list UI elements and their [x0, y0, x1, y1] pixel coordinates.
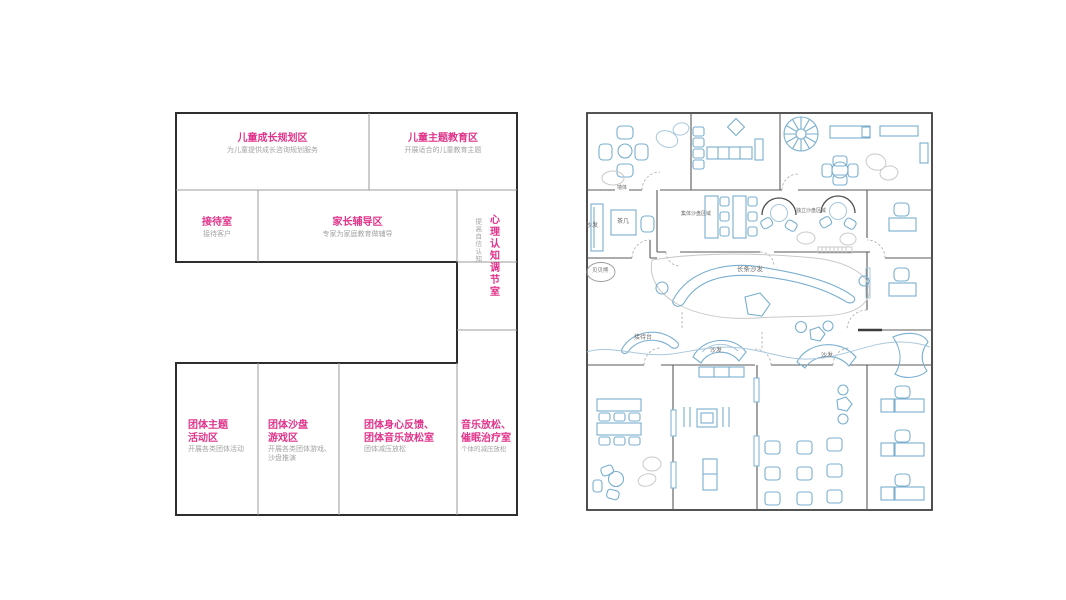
curved-sofa-right: [893, 333, 928, 377]
winding-path: [587, 342, 930, 359]
zone-title: 团体沙盘游戏区: [268, 420, 313, 445]
reception-desk-label: 接待台: [634, 335, 652, 341]
zone-group-sandplay: 团体沙盘游戏区 开展各类团体游戏、沙盘推演: [268, 420, 334, 464]
wall-label: 墙体: [615, 186, 629, 191]
zone-subtitle: 接待客户: [176, 230, 258, 239]
floorplan-page: 儿童成长规划区 为儿童提供成长咨询规划服务 儿童主题教育区 开展适合的儿童教育主…: [0, 0, 1066, 600]
zone-subtitle: 团体减压放松: [364, 445, 456, 454]
floorplan-linework: [0, 0, 1066, 600]
office-desks-group: [866, 203, 916, 298]
media-room: [671, 367, 759, 490]
zone-hypnosis: 音乐放松、催眠治疗室 个体的减压放松: [461, 420, 515, 454]
zone-reception: 接待室 接待客户: [176, 217, 258, 239]
pentagon-table: [745, 293, 770, 316]
zone-title: 家长辅导区: [258, 217, 457, 230]
tea-table-label: 茶几: [617, 219, 629, 225]
long-sofa: [673, 265, 855, 306]
sofa-mid-label: 沙发: [710, 348, 722, 354]
zone-child-education: 儿童主题教育区 开展适合的儿童教育主题: [369, 133, 517, 155]
spiral-stair: [784, 117, 818, 151]
zone-child-growth: 儿童成长规划区 为儿童提供成长咨询规划服务: [176, 133, 369, 155]
zone-group-music: 团体身心反馈、团体音乐放松室 团体减压放松: [364, 420, 456, 454]
cross-seating-group: [599, 121, 690, 185]
zone-subtitle: 个体的减压放松: [461, 445, 515, 454]
zone-cognition-subtitle: 提高自信认知: [473, 218, 482, 263]
sofa-right-label: 沙发: [821, 353, 833, 359]
zone-subtitle: 专家为家庭教育做辅导: [258, 230, 457, 239]
long-sofa-label: 长条沙发: [737, 266, 763, 273]
meeting-tables-group: [822, 126, 928, 185]
beibei-bear-label: 贝贝熊: [592, 269, 609, 275]
zone-subtitle: 开展各类团体游戏、沙盘推演: [268, 445, 334, 464]
left-plan-walls: [176, 113, 517, 515]
seat-row-table-group: [693, 119, 763, 169]
zone-cognition-title: 心理认知调节室: [486, 214, 499, 298]
group-sand-label: 集体沙盘区域: [681, 212, 711, 217]
zone-title: 团体身心反馈、团体音乐放松室: [364, 420, 440, 445]
sandplay-room-group: [705, 196, 857, 253]
zone-subtitle: 开展适合的儿童教育主题: [369, 146, 517, 155]
sofa-label: 沙发: [586, 223, 598, 229]
zone-title: 团体主题活动区: [188, 420, 233, 445]
zone-subtitle: 开展各类团体活动: [188, 445, 254, 454]
zone-parent-tutoring: 家长辅导区 专家为家庭教育做辅导: [258, 217, 457, 239]
music-relax-room: [765, 385, 852, 505]
zone-subtitle: 为儿童提供成长咨询规划服务: [176, 146, 369, 155]
workstation-column: [881, 386, 924, 500]
zone-group-activity: 团体主题活动区 开展各类团体活动: [188, 420, 254, 454]
zone-title: 接待室: [176, 217, 258, 230]
zone-title: 音乐放松、催眠治疗室: [461, 420, 513, 445]
group-activity-room: [593, 399, 661, 500]
zone-title: 儿童成长规划区: [176, 133, 369, 146]
zone-title: 儿童主题教育区: [369, 133, 517, 146]
individual-sand-label: 独立沙盘区域: [796, 209, 826, 214]
